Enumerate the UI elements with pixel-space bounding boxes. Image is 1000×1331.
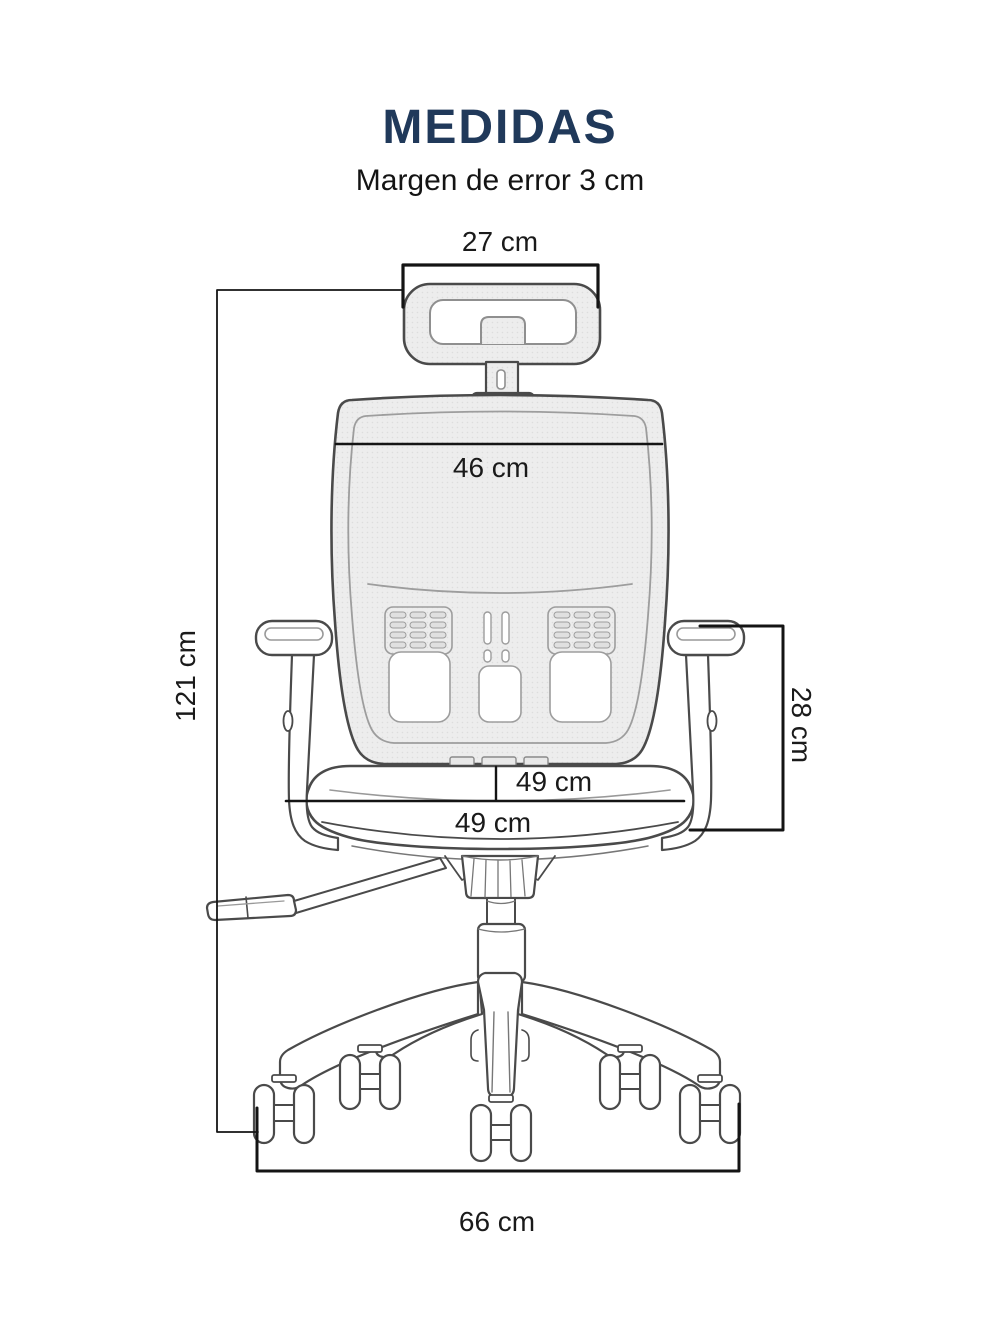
caster-mid-right — [600, 1045, 660, 1109]
chair-diagram — [0, 0, 1000, 1331]
height-lever — [207, 858, 446, 920]
dimension-label-headrest-width: 27 cm — [430, 226, 570, 258]
headrest — [404, 284, 600, 364]
chair-art — [207, 284, 744, 1161]
dimension-label-seat-width-upper: 49 cm — [484, 766, 624, 798]
dimension-label-seat-width-lower: 49 cm — [423, 807, 563, 839]
measurement-diagram-page: MEDIDAS Margen de error 3 cm — [0, 0, 1000, 1331]
dimension-label-armrest-height: 28 cm — [785, 655, 817, 795]
backrest — [331, 395, 668, 767]
dimension-label-base-width: 66 cm — [427, 1206, 567, 1238]
gas-cylinder — [462, 856, 538, 982]
caster-center — [471, 1095, 531, 1161]
caster-mid-left — [340, 1045, 400, 1109]
dimension-label-backrest-width: 46 cm — [421, 452, 561, 484]
dimension-label-total-height: 121 cm — [170, 606, 202, 746]
